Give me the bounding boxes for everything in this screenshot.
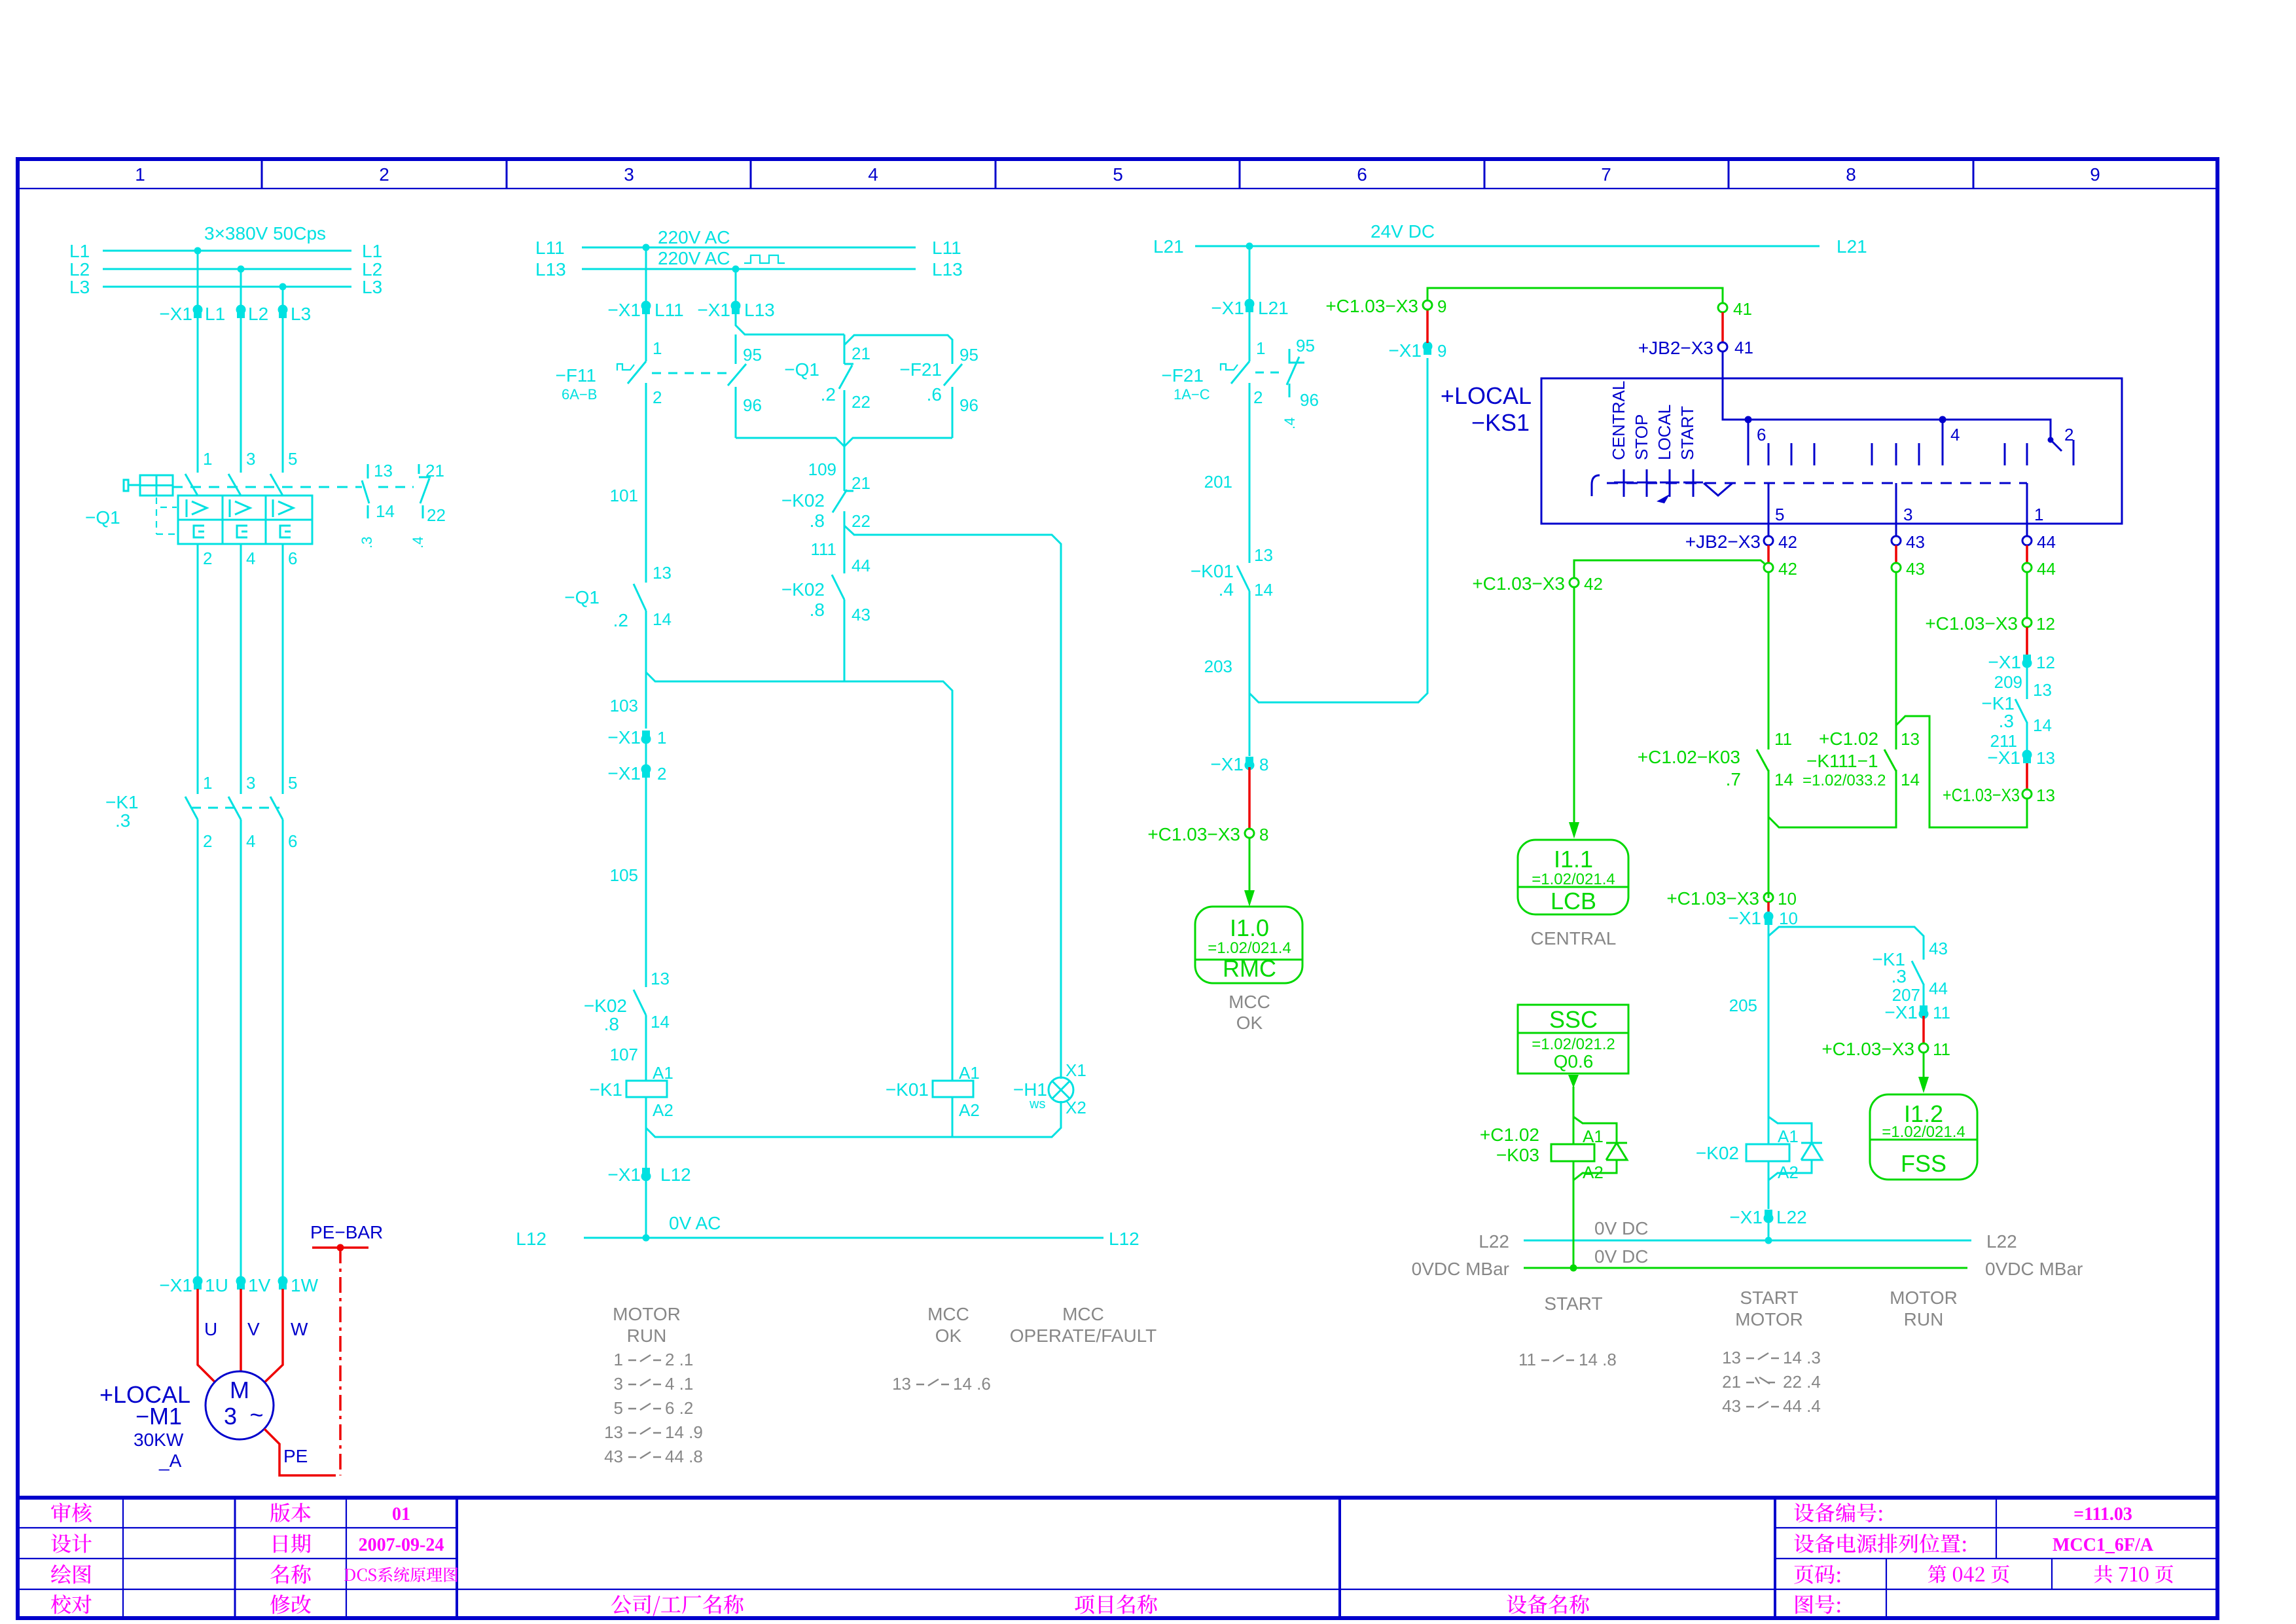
svg-text:L12: L12 [1109, 1229, 1139, 1249]
svg-text:13: 13 [2036, 748, 2055, 768]
svg-text:2: 2 [203, 831, 212, 851]
svg-text:205: 205 [1729, 996, 1757, 1015]
svg-text:2: 2 [653, 388, 662, 407]
svg-text:.3: .3 [1892, 966, 1907, 986]
svg-text:95: 95 [1296, 336, 1315, 355]
svg-text:14: 14 [1254, 580, 1273, 600]
svg-text:21: 21 [852, 473, 870, 493]
svg-text:5: 5 [1113, 164, 1123, 185]
svg-text:13: 13 [653, 563, 672, 583]
svg-text:L22: L22 [1479, 1231, 1509, 1252]
svg-text:−X1: −X1 [607, 763, 641, 784]
svg-text:L11: L11 [655, 300, 684, 320]
svg-text:MOTOR: MOTOR [613, 1304, 681, 1324]
svg-text:PE: PE [283, 1446, 308, 1466]
svg-text:101: 101 [610, 486, 638, 505]
svg-text:6: 6 [1757, 425, 1766, 444]
svg-text:1W: 1W [291, 1275, 319, 1295]
svg-text:+JB2−X3: +JB2−X3 [1638, 338, 1713, 358]
svg-text:L3: L3 [291, 304, 311, 324]
svg-text:4: 4 [1950, 425, 1960, 444]
svg-text:6: 6 [1357, 164, 1367, 185]
svg-text:−K02: −K02 [584, 996, 627, 1016]
svg-text:START: START [1677, 406, 1697, 460]
svg-text:.3: .3 [1999, 711, 2014, 731]
svg-text:OK: OK [1236, 1013, 1263, 1033]
svg-text:−X1: −X1 [697, 300, 730, 320]
svg-text:42: 42 [1778, 559, 1797, 579]
svg-text:PE−BAR: PE−BAR [310, 1222, 383, 1242]
svg-text:.6: .6 [927, 384, 942, 405]
svg-text:U: U [204, 1319, 217, 1339]
svg-text:0V DC: 0V DC [1594, 1218, 1648, 1238]
svg-text:MOTOR: MOTOR [1735, 1309, 1803, 1329]
svg-text:.8: .8 [604, 1014, 619, 1034]
svg-text:MCC: MCC [927, 1304, 969, 1324]
svg-text:=1.02/021.2: =1.02/021.2 [1532, 1036, 1615, 1053]
svg-text:−K01: −K01 [886, 1079, 929, 1100]
svg-text:L1: L1 [362, 241, 382, 261]
svg-text:RUN: RUN [1904, 1309, 1944, 1329]
svg-text:−X1: −X1 [607, 1164, 641, 1185]
svg-text:3: 3 [1903, 505, 1912, 524]
svg-text:LCB: LCB [1551, 888, 1596, 914]
svg-text:L12: L12 [516, 1229, 547, 1249]
svg-text:−K03: −K03 [1496, 1145, 1539, 1165]
svg-text:0V AC: 0V AC [669, 1213, 721, 1233]
svg-text:21: 21 [852, 344, 870, 363]
svg-text:11: 11 [1518, 1350, 1536, 1369]
svg-text:+C1.02: +C1.02 [1480, 1125, 1539, 1145]
svg-text:41: 41 [1734, 338, 1753, 357]
svg-text:43: 43 [852, 605, 870, 624]
svg-text:L13: L13 [932, 259, 963, 280]
svg-text:6: 6 [288, 831, 297, 851]
svg-text:3: 3 [246, 449, 255, 469]
svg-text:9: 9 [1437, 297, 1446, 316]
svg-text:12: 12 [2036, 614, 2055, 634]
svg-text:5: 5 [288, 449, 297, 469]
svg-text:OK: OK [935, 1326, 962, 1346]
svg-text:2: 2 [1253, 388, 1263, 407]
svg-text:A1: A1 [959, 1063, 980, 1083]
svg-text:12: 12 [2036, 653, 2055, 672]
svg-text:.3: .3 [115, 810, 130, 831]
svg-text:3: 3 [246, 773, 255, 793]
svg-text:L13: L13 [535, 259, 566, 280]
svg-text:1: 1 [135, 164, 145, 185]
svg-text:21: 21 [1722, 1372, 1741, 1392]
svg-text:+C1.03−X3: +C1.03−X3 [1472, 573, 1565, 594]
svg-text:.3: .3 [359, 537, 375, 549]
svg-text:1: 1 [203, 449, 212, 469]
svg-text:−K02: −K02 [781, 490, 825, 511]
svg-text:44 .8: 44 .8 [665, 1447, 703, 1466]
svg-text:4: 4 [246, 549, 255, 568]
svg-text:5: 5 [1775, 505, 1784, 524]
svg-text:−Q1: −Q1 [564, 587, 600, 607]
svg-text:+LOCAL: +LOCAL [1441, 382, 1532, 409]
svg-text:A1: A1 [653, 1063, 673, 1083]
svg-text:111: 111 [810, 539, 836, 559]
svg-text:I1.1: I1.1 [1554, 846, 1593, 873]
svg-text:W: W [291, 1319, 308, 1339]
svg-text:203: 203 [1204, 657, 1232, 676]
svg-text:96: 96 [743, 395, 762, 415]
svg-text:4 .1: 4 .1 [665, 1374, 693, 1394]
svg-text:2: 2 [2064, 425, 2073, 444]
svg-text:L11: L11 [932, 238, 961, 258]
svg-text:RMC: RMC [1223, 955, 1276, 982]
svg-text:Q0.6: Q0.6 [1554, 1051, 1594, 1072]
svg-text:−X1: −X1 [159, 1275, 192, 1295]
svg-text:A2: A2 [959, 1100, 980, 1120]
svg-text:−X1: −X1 [1987, 748, 2020, 768]
svg-text:M: M [230, 1377, 249, 1403]
svg-text:42: 42 [1584, 574, 1603, 594]
svg-text:SSC: SSC [1549, 1006, 1598, 1033]
svg-text:1: 1 [614, 1350, 623, 1369]
svg-text:6A−B: 6A−B [562, 386, 597, 403]
svg-text:ws: ws [1029, 1097, 1045, 1111]
svg-text:A1: A1 [1583, 1127, 1604, 1146]
svg-text:14 .9: 14 .9 [665, 1422, 703, 1442]
svg-text:43: 43 [1929, 939, 1948, 958]
svg-text:.4: .4 [1282, 418, 1298, 429]
svg-text:44: 44 [1929, 979, 1948, 998]
svg-text:22: 22 [427, 505, 446, 525]
svg-text:LOCAL: LOCAL [1655, 405, 1674, 460]
svg-text:220V AC: 220V AC [658, 248, 730, 268]
svg-text:.2: .2 [613, 610, 628, 630]
svg-text:13: 13 [374, 461, 393, 480]
svg-text:START: START [1544, 1293, 1602, 1314]
svg-text:3: 3 [224, 1403, 237, 1430]
svg-text:5: 5 [614, 1398, 623, 1418]
svg-text:.4: .4 [1219, 579, 1234, 600]
svg-text:1: 1 [203, 773, 212, 793]
svg-text:43: 43 [1906, 559, 1925, 579]
svg-text:10: 10 [1779, 909, 1798, 928]
svg-text:MOTOR: MOTOR [1890, 1288, 1958, 1308]
svg-text:−K111−1: −K111−1 [1806, 751, 1878, 771]
svg-text:14 .3: 14 .3 [1783, 1348, 1821, 1367]
svg-text:L21: L21 [1153, 236, 1184, 257]
svg-text:L2: L2 [248, 304, 268, 324]
svg-text:−K02: −K02 [1696, 1143, 1739, 1163]
svg-text:105: 105 [610, 865, 638, 885]
svg-text:+C1.03−X3: +C1.03−X3 [1943, 785, 2020, 805]
svg-text:44: 44 [2037, 532, 2056, 552]
svg-text:2 .1: 2 .1 [665, 1350, 693, 1369]
svg-text:L22: L22 [1776, 1207, 1807, 1227]
svg-text:1: 1 [653, 338, 662, 358]
svg-text:01: 01 [392, 1504, 410, 1525]
svg-text:RUN: RUN [627, 1326, 667, 1346]
svg-text:L13: L13 [744, 300, 775, 320]
svg-text:CENTRAL: CENTRAL [1609, 381, 1628, 460]
svg-text:8: 8 [1846, 164, 1856, 185]
svg-text:+C1.03−X3: +C1.03−X3 [1821, 1039, 1914, 1059]
svg-text:L1: L1 [69, 241, 90, 261]
svg-text:22 .4: 22 .4 [1783, 1372, 1821, 1392]
svg-text:4: 4 [868, 164, 878, 185]
svg-text:~: ~ [249, 1401, 263, 1428]
svg-text:11: 11 [1933, 1003, 1950, 1022]
svg-text:11: 11 [1933, 1039, 1950, 1059]
svg-text:L3: L3 [69, 277, 90, 297]
svg-text:10: 10 [1778, 889, 1797, 909]
svg-text:3: 3 [614, 1374, 623, 1394]
svg-text:14: 14 [651, 1012, 670, 1032]
svg-text:13: 13 [1254, 545, 1273, 565]
svg-text:+C1.03−X3: +C1.03−X3 [1925, 613, 2018, 634]
svg-text:−X1: −X1 [159, 304, 192, 324]
svg-text:95: 95 [743, 345, 762, 365]
svg-text:=1.02/021.4: =1.02/021.4 [1882, 1123, 1965, 1141]
svg-text:1: 1 [657, 728, 666, 748]
svg-text:I1.0: I1.0 [1230, 914, 1269, 941]
svg-text:13: 13 [604, 1422, 623, 1442]
svg-text:44: 44 [852, 556, 870, 575]
svg-text:107: 107 [610, 1045, 638, 1064]
svg-text:14: 14 [653, 609, 672, 629]
svg-text:8: 8 [1259, 755, 1268, 774]
svg-text:=1.02/021.4: =1.02/021.4 [1208, 939, 1291, 957]
svg-text:43: 43 [1722, 1396, 1741, 1416]
svg-text:−K1: −K1 [589, 1079, 622, 1100]
svg-text:−K1: −K1 [105, 792, 139, 812]
svg-text:−Q1: −Q1 [784, 359, 819, 380]
svg-text:2: 2 [657, 764, 666, 784]
svg-text:41: 41 [1733, 299, 1752, 319]
svg-text:X1: X1 [1066, 1060, 1086, 1080]
svg-text:14: 14 [2033, 715, 2052, 735]
svg-text:+C1.03−X3: +C1.03−X3 [1325, 296, 1418, 316]
svg-text:FSS: FSS [1901, 1150, 1946, 1177]
svg-text:.8: .8 [810, 600, 825, 620]
svg-text:−KS1: −KS1 [1471, 409, 1530, 436]
svg-text:STOP: STOP [1632, 414, 1651, 460]
svg-text:0V DC: 0V DC [1594, 1246, 1648, 1267]
svg-text:=1.02/033.2: =1.02/033.2 [1803, 772, 1886, 789]
svg-text:22: 22 [852, 511, 870, 531]
svg-text:220V AC: 220V AC [658, 227, 730, 247]
svg-text:0VDC MBar: 0VDC MBar [1412, 1259, 1509, 1279]
svg-text:43: 43 [1906, 532, 1925, 552]
svg-text:+C1.02: +C1.02 [1819, 729, 1878, 749]
svg-text:1: 1 [1256, 338, 1265, 358]
svg-text:103: 103 [610, 696, 638, 715]
svg-text:+C1.03−X3: +C1.03−X3 [1147, 824, 1240, 844]
svg-text:+C1.02−K03: +C1.02−K03 [1638, 747, 1740, 767]
svg-text:1: 1 [2034, 505, 2043, 524]
svg-text:MCC: MCC [1229, 992, 1270, 1012]
svg-text:14 .8: 14 .8 [1579, 1350, 1617, 1369]
svg-text:−X1: −X1 [1210, 754, 1244, 774]
svg-text:.4: .4 [410, 537, 426, 549]
svg-text:44: 44 [2037, 559, 2056, 579]
svg-text:L3: L3 [362, 277, 382, 297]
svg-text:24V DC: 24V DC [1371, 221, 1435, 242]
svg-text:_A: _A [158, 1451, 182, 1471]
svg-text:CENTRAL: CENTRAL [1531, 928, 1617, 948]
svg-text:−Q1: −Q1 [85, 507, 120, 528]
svg-text:0VDC MBar: 0VDC MBar [1985, 1259, 2083, 1279]
svg-text:−X1: −X1 [1884, 1002, 1918, 1022]
svg-text:START: START [1740, 1288, 1798, 1308]
svg-text:13: 13 [651, 969, 670, 988]
svg-text:13: 13 [1901, 729, 1920, 749]
svg-text:3×380V 50Cps: 3×380V 50Cps [204, 223, 326, 244]
svg-text:109: 109 [808, 460, 836, 479]
svg-text:−M1: −M1 [135, 1403, 182, 1430]
svg-text:3: 3 [624, 164, 634, 185]
svg-text:L22: L22 [1986, 1231, 2017, 1252]
svg-text:OPERATE/FAULT: OPERATE/FAULT [1010, 1326, 1157, 1346]
svg-text:−F21: −F21 [899, 359, 942, 380]
svg-text:−K02: −K02 [781, 579, 825, 600]
svg-text:22: 22 [852, 392, 870, 412]
svg-text:−X1: −X1 [607, 727, 641, 748]
svg-text:2007-09-24: 2007-09-24 [359, 1535, 444, 1555]
svg-text:11: 11 [1774, 729, 1792, 749]
svg-text:44 .4: 44 .4 [1783, 1396, 1821, 1416]
svg-text:13: 13 [2033, 680, 2052, 700]
svg-text:209: 209 [1994, 672, 2022, 692]
svg-text:1U: 1U [205, 1275, 228, 1295]
svg-text:96: 96 [1300, 390, 1319, 410]
svg-text:MCC1_6F/A: MCC1_6F/A [2053, 1535, 2154, 1555]
svg-text:+JB2−X3: +JB2−X3 [1685, 532, 1761, 552]
svg-text:2: 2 [203, 549, 212, 568]
svg-text:14: 14 [1901, 770, 1920, 789]
svg-text:−X1: −X1 [1388, 340, 1422, 361]
svg-text:8: 8 [1259, 825, 1268, 844]
svg-text:21: 21 [425, 461, 444, 480]
svg-text:=111.03: =111.03 [2073, 1504, 2132, 1525]
svg-text:9: 9 [2090, 164, 2100, 185]
svg-text:−X1: −X1 [1988, 652, 2021, 672]
svg-text:6: 6 [288, 549, 297, 568]
svg-text:−X1: −X1 [1729, 1207, 1763, 1227]
svg-text:=1.02/021.4: =1.02/021.4 [1532, 871, 1615, 888]
svg-text:1V: 1V [248, 1275, 271, 1295]
svg-text:30KW: 30KW [134, 1430, 184, 1450]
svg-text:14: 14 [1774, 770, 1793, 789]
svg-text:MCC: MCC [1062, 1304, 1104, 1324]
svg-text:L21: L21 [1258, 298, 1289, 318]
svg-text:14 .6: 14 .6 [953, 1374, 991, 1394]
svg-text:7: 7 [1601, 164, 1611, 185]
svg-text:−F11: −F11 [555, 365, 596, 386]
svg-text:14: 14 [376, 501, 395, 521]
svg-text:1A−C: 1A−C [1174, 386, 1210, 403]
svg-text:4: 4 [246, 831, 255, 851]
svg-text:13: 13 [1722, 1348, 1741, 1367]
svg-text:L1: L1 [205, 304, 225, 324]
svg-text:201: 201 [1204, 472, 1232, 492]
svg-text:−X1: −X1 [1728, 908, 1761, 928]
svg-text:L12: L12 [660, 1164, 691, 1185]
svg-text:42: 42 [1778, 532, 1797, 552]
svg-text:43: 43 [604, 1447, 623, 1466]
svg-text:13: 13 [892, 1374, 911, 1394]
svg-text:95: 95 [960, 345, 978, 365]
svg-text:V: V [247, 1319, 260, 1339]
svg-text:L21: L21 [1837, 236, 1867, 257]
svg-text:−K01: −K01 [1191, 561, 1234, 581]
svg-text:A1: A1 [1778, 1127, 1799, 1146]
svg-text:5: 5 [288, 773, 297, 793]
svg-text:−X1: −X1 [1211, 298, 1244, 318]
svg-text:X2: X2 [1066, 1098, 1086, 1117]
svg-text:−F21: −F21 [1161, 365, 1204, 386]
svg-text:.2: .2 [821, 384, 836, 405]
svg-text:.8: .8 [810, 511, 825, 531]
svg-text:96: 96 [960, 395, 978, 415]
svg-text:13: 13 [2036, 785, 2055, 805]
svg-text:6 .2: 6 .2 [665, 1398, 693, 1418]
svg-text:+C1.03−X3: +C1.03−X3 [1666, 888, 1759, 909]
svg-text:A2: A2 [653, 1100, 673, 1120]
svg-text:.7: .7 [1726, 769, 1741, 789]
svg-text:−X1: −X1 [607, 300, 641, 320]
svg-text:9: 9 [1437, 341, 1446, 361]
svg-text:L11: L11 [535, 238, 565, 258]
svg-text:2: 2 [379, 164, 389, 185]
